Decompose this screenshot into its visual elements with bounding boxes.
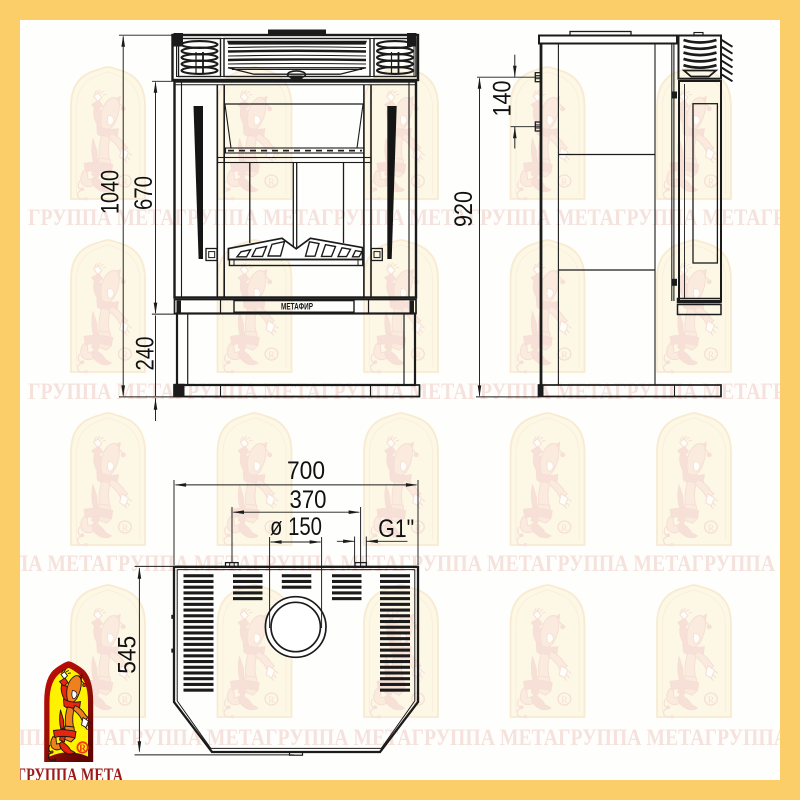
svg-text:700: 700 [287, 457, 325, 485]
svg-text:ø 150: ø 150 [270, 513, 322, 541]
svg-text:1040: 1040 [97, 170, 125, 214]
svg-text:G1": G1" [378, 515, 414, 543]
svg-text:670: 670 [130, 176, 158, 210]
svg-text:140: 140 [489, 81, 517, 117]
svg-text:МЕТАФИР: МЕТАФИР [281, 302, 313, 312]
svg-text:ГРУППА МЕТАГРУППА МЕТАГРУППА М: ГРУППА МЕТАГРУППА МЕТАГРУППА МЕТАГРУППА … [0, 725, 800, 750]
svg-text:545: 545 [114, 636, 142, 674]
svg-text:ГРУППА МЕТАГРУППА МЕТАГРУППА М: ГРУППА МЕТАГРУППА МЕТАГРУППА МЕТАГРУППА … [0, 551, 800, 576]
svg-text:240: 240 [132, 337, 160, 371]
svg-text:920: 920 [450, 191, 478, 227]
svg-text:R: R [79, 744, 86, 754]
svg-text:370: 370 [290, 486, 327, 514]
